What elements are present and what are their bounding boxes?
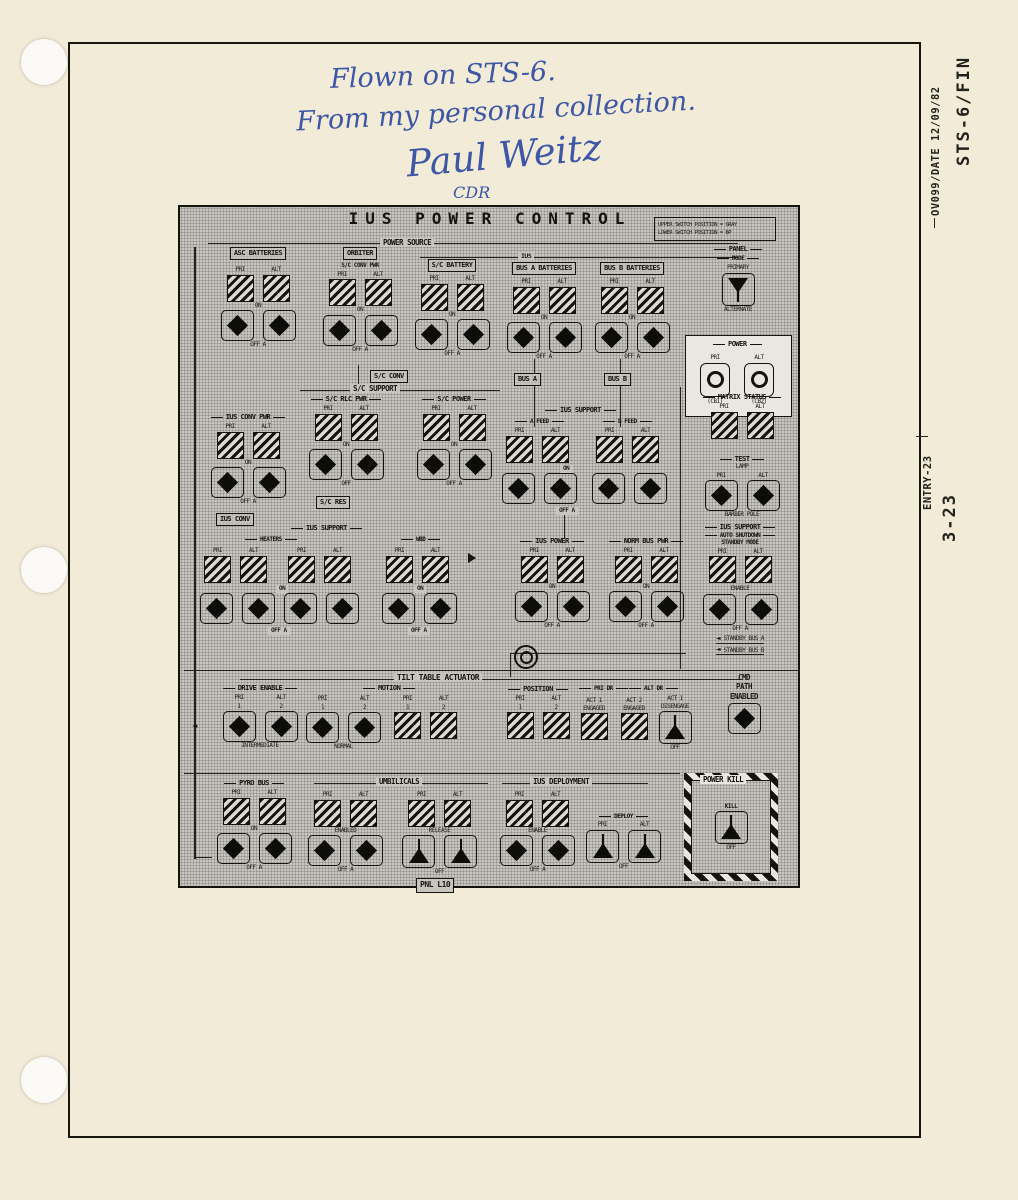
off-a-label: OFF A xyxy=(250,341,266,349)
toggle-switch xyxy=(557,591,590,622)
toggle-switch xyxy=(634,473,667,504)
num-1-label: 1 xyxy=(518,704,521,712)
auto-shutdown-label: AUTO SHUTDOWN xyxy=(702,532,778,539)
pri-label: PRI xyxy=(234,694,243,702)
ius-power-cluster: IUS POWER PRI ALT ON OFF A xyxy=(504,537,600,630)
alt-label: ALT xyxy=(467,405,476,413)
toggle-switch xyxy=(595,322,628,353)
alt-label: ALT xyxy=(753,548,762,556)
toggle-knob-icon xyxy=(314,454,335,475)
toggle-knob-icon xyxy=(600,327,621,348)
alt-label: ALT xyxy=(754,354,763,362)
talkback-indicator xyxy=(506,436,533,463)
off-a-label: OFF A xyxy=(268,627,290,635)
toggle-knob-icon xyxy=(258,472,279,493)
talkback-indicator xyxy=(204,556,231,583)
off-label: OFF xyxy=(341,480,350,488)
margin-tick xyxy=(934,218,935,228)
path-label: PATH xyxy=(736,682,752,691)
b-feed-talkbacks: PRI ALT xyxy=(596,427,659,463)
toggle-switch xyxy=(306,712,339,743)
ius-conv-pwr-cluster: IUS CONV PWR PRI ALT ON OFF A xyxy=(200,413,296,506)
orbiter-label: ORBITER xyxy=(343,247,377,260)
talkback-indicator xyxy=(288,556,315,583)
lever-switch xyxy=(444,835,477,868)
talkback-indicator xyxy=(386,556,413,583)
position-cluster: POSITION PRI1 ALT2 xyxy=(496,685,580,739)
toggle-knob-icon xyxy=(512,327,533,348)
lever-switch xyxy=(722,273,755,306)
panel-mode-cluster: PANEL MODE PRIMARY ALTERNATE xyxy=(688,245,788,313)
alt-label: ALT xyxy=(267,789,276,797)
toggle-switch xyxy=(542,835,575,866)
pri-label: PRI xyxy=(403,695,412,703)
a-feed-label: A FEED xyxy=(512,418,567,425)
lever-switch xyxy=(628,830,661,863)
section-ius: IUS xyxy=(518,252,534,260)
left-arrow-icon: ◄ xyxy=(716,636,721,642)
on-label: ON xyxy=(276,585,288,593)
num-2-label: 2 xyxy=(363,704,366,712)
toggle-switch xyxy=(507,322,540,353)
power-kill-box: POWER KILL KILL OFF xyxy=(684,773,778,881)
toggle-switch xyxy=(651,591,684,622)
on-label: ON xyxy=(549,583,555,591)
wbd-talkbacks: PRI ALT xyxy=(386,547,449,583)
toggle-switch xyxy=(457,319,490,350)
talkback-indicator xyxy=(329,279,356,306)
enabled-label: ENABLED xyxy=(730,692,758,701)
toggle-switch xyxy=(549,322,582,353)
toggle-knob-icon xyxy=(640,478,661,499)
alt-label: ALT xyxy=(557,278,566,286)
toggle-switch xyxy=(350,835,383,866)
talkback-indicator xyxy=(314,800,341,827)
test-cluster: TEST LAMP PRI ALT BARBER POLE xyxy=(692,455,792,519)
talkback-indicator xyxy=(632,436,659,463)
act1-engaged-label: ACT 1 ENGAGED xyxy=(576,697,612,712)
mode-label: MODE xyxy=(714,255,762,262)
toggle-knob-icon xyxy=(314,840,335,861)
ius-support-standby-cluster: IUS SUPPORT AUTO SHUTDOWN STANDBY MODE P… xyxy=(684,523,796,655)
standby-bus-b-line: ◄ STANDBY BUS B xyxy=(716,647,764,656)
off-label: OFF xyxy=(670,744,679,752)
off-label: OFF xyxy=(435,868,444,876)
talkback-indicator xyxy=(223,798,250,825)
row-divider-line xyxy=(184,773,680,774)
talkback-indicator xyxy=(351,414,378,441)
pri-label: PRI xyxy=(710,354,719,362)
alt-label: ALT xyxy=(249,547,258,555)
b-feed-label: B FEED xyxy=(600,418,655,425)
barber-pole-label: BARBER POLE xyxy=(725,511,759,519)
toggle-knob-icon xyxy=(550,478,571,499)
toggle-switch xyxy=(459,449,492,480)
talkback-indicator xyxy=(747,412,774,439)
enable-label: ENABLE xyxy=(528,827,547,835)
bus-line xyxy=(534,359,535,373)
toggle-knob-icon xyxy=(462,324,483,345)
section-ius-deployment: IUS DEPLOYMENT xyxy=(530,777,592,786)
pri-label: PRI xyxy=(623,547,632,555)
on-label: ON xyxy=(414,585,426,593)
bus-b-batteries-cluster: BUS B BATTERIES PRI ALT ON OFF A xyxy=(584,262,680,361)
toggle-knob-icon xyxy=(216,472,237,493)
pri-label: PRI xyxy=(515,791,524,799)
panel-label: PANEL xyxy=(711,245,766,253)
pri-label: PRI xyxy=(395,547,404,555)
pri-label: PRI xyxy=(323,405,332,413)
off-a-label: OFF A xyxy=(444,350,460,358)
asc-batteries-label: ASC BATTERIES xyxy=(230,247,286,260)
toggle-switch xyxy=(703,594,736,625)
toggle-switch xyxy=(415,319,448,350)
bus-line xyxy=(620,359,621,373)
num-2-label: 2 xyxy=(442,704,445,712)
talkback-indicator xyxy=(459,414,486,441)
schematic-title: IUS POWER CONTROL xyxy=(300,209,680,228)
talkback-indicator xyxy=(621,713,648,740)
right-arrow-icon xyxy=(468,553,476,563)
toggle-switch xyxy=(200,593,233,624)
toggle-switch xyxy=(424,593,457,624)
scanned-document-page: { "margin": { "doc_ref": "OV099/DATE 12/… xyxy=(0,0,1018,1200)
entry-label: ENTRY-23 xyxy=(922,440,934,510)
toggle-knob-icon xyxy=(370,320,391,341)
on-label: ON xyxy=(541,314,547,322)
heaters-switches-2 xyxy=(284,593,359,624)
panel-ref-label: PNL L10 xyxy=(416,878,454,893)
toggle-knob-icon xyxy=(356,840,377,861)
lever-switch xyxy=(659,711,692,744)
toggle-knob-icon xyxy=(548,840,569,861)
alt-label: ALT xyxy=(551,427,560,435)
pri-label: PRI xyxy=(213,547,222,555)
toggle-knob-icon xyxy=(508,478,529,499)
ius-power-control-schematic: IUS POWER CONTROL UPPER SWITCH POSITION … xyxy=(178,205,800,888)
left-arrow-icon: ◄ xyxy=(716,647,721,653)
toggle-knob-icon xyxy=(598,478,619,499)
bus-a-batteries-cluster: BUS A BATTERIES PRI ALT ON OFF A xyxy=(496,262,592,361)
toggle-switch xyxy=(728,703,761,734)
talkback-indicator xyxy=(444,800,471,827)
punch-hole xyxy=(21,39,67,85)
talkback-indicator xyxy=(227,275,254,302)
power-kill-label: POWER KILL xyxy=(700,775,746,784)
a-feed-talkbacks: PRI ALT xyxy=(506,427,569,463)
motion-talkbacks: PRI1 ALT2 xyxy=(394,695,457,739)
toggle-switch xyxy=(211,467,244,498)
on-label: ON xyxy=(451,441,457,449)
alt-label: ALT xyxy=(360,695,369,703)
toggle-knob-icon xyxy=(356,454,377,475)
toggle-switch xyxy=(745,594,778,625)
talkback-indicator xyxy=(601,287,628,314)
toggle-knob-icon xyxy=(270,716,291,737)
power-source-bracket-line xyxy=(208,243,738,244)
talkback-indicator xyxy=(615,556,642,583)
section-power-source: POWER SOURCE xyxy=(380,238,434,247)
act1-disengage-lever: ACT 1 DISENGAGE OFF xyxy=(654,695,696,752)
alt-label: ALT xyxy=(758,472,767,480)
toggle-knob-icon xyxy=(388,598,409,619)
pri-label: PRI xyxy=(521,278,530,286)
doc-ref-label: OV099/DATE 12/09/82 xyxy=(930,46,942,216)
off-label: OFF xyxy=(619,863,628,871)
margin-tick xyxy=(916,436,928,437)
talkback-indicator xyxy=(421,284,448,311)
talkback-indicator xyxy=(521,556,548,583)
off-a-label: OFF A xyxy=(556,507,578,515)
breaker-knob-icon xyxy=(751,371,768,388)
lever-stem-icon xyxy=(730,815,732,827)
section-umbilicals: UMBILICALS xyxy=(376,777,422,786)
pri-label: PRI xyxy=(605,427,614,435)
bus-b-batteries-label: BUS B BATTERIES xyxy=(600,262,664,275)
pyro-bus-label: PYRO BUS xyxy=(221,779,287,787)
alt-label: ALT xyxy=(333,547,342,555)
pri-label: PRI xyxy=(515,427,524,435)
toggle-switch xyxy=(515,591,548,622)
toggle-switch xyxy=(609,591,642,622)
primary-label: PRIMARY xyxy=(727,264,749,272)
bus-a-batteries-label: BUS A BATTERIES xyxy=(512,262,576,275)
toggle-switch xyxy=(284,593,317,624)
toggle-switch xyxy=(223,711,256,742)
power-kill-inner: POWER KILL KILL OFF xyxy=(691,780,771,874)
toggle-switch xyxy=(253,467,286,498)
toggle-knob-icon xyxy=(710,485,731,506)
off-a-label: OFF A xyxy=(408,627,430,635)
toggle-knob-icon xyxy=(733,708,754,729)
pri-label: PRI xyxy=(598,821,607,829)
off-a-label: OFF A xyxy=(240,498,256,506)
normal-label: NORMAL xyxy=(334,743,353,751)
mission-label: STS-6/FIN xyxy=(954,46,974,166)
toggle-switch xyxy=(309,449,342,480)
kill-label: KILL xyxy=(725,803,737,811)
talkback-indicator xyxy=(581,713,608,740)
lamp-label: LAMP xyxy=(736,463,748,471)
talkback-indicator xyxy=(637,287,664,314)
toggle-knob-icon xyxy=(562,596,583,617)
pyro-bus-cluster: PYRO BUS PRI ALT ON OFF A xyxy=(206,779,302,872)
talkback-indicator xyxy=(549,287,576,314)
toggle-switch xyxy=(417,449,450,480)
alt-label: ALT xyxy=(465,275,474,283)
act2-engaged-label: ACT 2 ENGAGED xyxy=(616,697,652,712)
off-a-label: OFF A xyxy=(544,622,560,630)
alt-label: ALT xyxy=(453,791,462,799)
pri-label: PRI xyxy=(225,423,234,431)
on-label: ON xyxy=(245,459,251,467)
pri-label: PRI xyxy=(431,405,440,413)
toggle-switch xyxy=(265,711,298,742)
toggle-switch xyxy=(365,315,398,346)
pri-label: PRI xyxy=(716,472,725,480)
toggle-knob-icon xyxy=(750,598,771,619)
alt-label: ALT xyxy=(431,547,440,555)
row-divider-line xyxy=(184,670,798,671)
toggle-knob-icon xyxy=(642,327,663,348)
toggle-knob-icon xyxy=(328,320,349,341)
toggle-knob-icon xyxy=(520,596,541,617)
left-bus-line xyxy=(194,247,196,859)
pri-label: PRI xyxy=(235,266,244,274)
deployment-enable-cluster: PRI ALT ENABLE OFF A xyxy=(500,791,575,874)
on-label: ON xyxy=(643,583,649,591)
alt-label: ALT xyxy=(261,423,270,431)
lever-stem-icon xyxy=(644,834,646,846)
alt-label: ALT xyxy=(659,547,668,555)
on-label: ON xyxy=(629,314,635,322)
alt-label: ALT xyxy=(641,427,650,435)
ius-conv-label: IUS CONV xyxy=(216,513,254,526)
act1-engaged-talkback: ACT 1 ENGAGED xyxy=(576,697,612,740)
sc-power-label: S/C POWER xyxy=(419,395,488,403)
num-1-label: 1 xyxy=(237,703,240,711)
page-number-label: 3-23 xyxy=(940,452,960,542)
off-label: OFF xyxy=(726,844,735,852)
talkback-indicator xyxy=(263,275,290,302)
punch-hole xyxy=(21,547,67,593)
toggle-knob-icon xyxy=(228,716,249,737)
talkback-indicator xyxy=(507,712,534,739)
toggle-knob-icon xyxy=(268,315,289,336)
toggle-switch xyxy=(382,593,415,624)
sc-battery-cluster: S/C BATTERY PRI ALT ON OFF A xyxy=(404,259,500,358)
alt-dr-label: ALT DR xyxy=(626,685,681,692)
talkback-indicator xyxy=(240,556,267,583)
talkback-indicator xyxy=(709,556,736,583)
ius-support-label: IUS SUPPORT xyxy=(702,523,779,531)
alt-label: ALT xyxy=(271,266,280,274)
umbilicals-release-cluster: PRI ALT RELEASE OFF xyxy=(402,791,477,876)
sc-rlc-pwr-label: S/C RLC PWR xyxy=(308,395,385,403)
standby-bus-a-line: ◄ STANDBY BUS A xyxy=(716,635,764,644)
toggle-knob-icon xyxy=(312,717,333,738)
bus-a-label: BUS A xyxy=(514,373,541,386)
position-label: POSITION xyxy=(505,685,571,693)
norm-bus-pwr-label: NORM BUS PWR xyxy=(606,537,687,545)
drive-enable-label: DRIVE ENABLE xyxy=(220,684,301,692)
on-label: ON xyxy=(449,311,455,319)
standby-bus-a-label: STANDBY BUS A xyxy=(724,635,764,643)
a-feed-switches xyxy=(502,473,577,504)
talkback-indicator xyxy=(543,712,570,739)
alt-label: ALT xyxy=(551,695,560,703)
enable-label: ENABLE xyxy=(731,585,750,593)
talkback-indicator xyxy=(315,414,342,441)
toggle-knob-icon xyxy=(554,327,575,348)
num-2-label: 2 xyxy=(554,704,557,712)
standby-bus-b-label: STANDBY BUS B xyxy=(724,647,764,655)
alt-label: ALT xyxy=(640,821,649,829)
talkback-indicator xyxy=(408,800,435,827)
ius-power-label: IUS POWER xyxy=(517,537,586,545)
talkback-indicator xyxy=(253,432,280,459)
pri-label: PRI xyxy=(719,403,728,411)
lever-switch xyxy=(402,835,435,868)
alt-label: ALT xyxy=(359,791,368,799)
toggle-switch xyxy=(308,835,341,866)
note-line1: UPPER SWITCH POSITION = GRAY xyxy=(658,222,737,229)
toggle-switch xyxy=(259,833,292,864)
off-a-label: OFF A xyxy=(624,353,640,361)
motion-label: MOTION xyxy=(360,684,418,692)
toggle-knob-icon xyxy=(506,840,527,861)
toggle-knob-icon xyxy=(430,598,451,619)
off-a-label: OFF A xyxy=(446,480,462,488)
alternate-label: ALTERNATE xyxy=(724,306,752,314)
toggle-knob-icon xyxy=(422,454,443,475)
toggle-switch xyxy=(500,835,533,866)
on-label: ON xyxy=(343,441,349,449)
sc-power-cluster: S/C POWER PRI ALT ON OFF A xyxy=(406,395,502,488)
alt-label: ALT xyxy=(565,547,574,555)
asc-batteries-cluster: ASC BATTERIES PRI ALT ON OFF A xyxy=(210,247,306,349)
toggle-knob-icon xyxy=(354,717,375,738)
toggle-switch xyxy=(637,322,670,353)
toggle-switch xyxy=(351,449,384,480)
sc-conv-label: S/C CONV xyxy=(370,370,408,383)
off-a-label: OFF A xyxy=(246,864,262,872)
tilt-table-bracket-line xyxy=(240,679,740,680)
enabled-label: ENABLED xyxy=(335,827,357,835)
pri-label: PRI xyxy=(429,275,438,283)
left-arrow-icon: ◄ xyxy=(192,723,197,730)
pri-label: PRI xyxy=(231,789,240,797)
alt-label: ALT xyxy=(373,271,382,279)
deployment-deploy-cluster: DEPLOY PRI ALT OFF xyxy=(586,813,661,870)
num-1-label: 1 xyxy=(321,704,324,712)
toggle-knob-icon xyxy=(222,838,243,859)
talkback-indicator xyxy=(506,800,533,827)
sc-res-label: S/C RES xyxy=(316,496,350,509)
sc-conv-pwr-label: S/C CONV PWR xyxy=(341,262,378,270)
pri-label: PRI xyxy=(297,547,306,555)
ius-conv-pwr-label: IUS CONV PWR xyxy=(208,413,289,421)
talkback-indicator xyxy=(711,412,738,439)
toggle-knob-icon xyxy=(332,598,353,619)
off-a-label: OFF A xyxy=(536,353,552,361)
pri-label: PRI xyxy=(717,548,726,556)
toggle-switch xyxy=(221,310,254,341)
heaters-talkbacks-2: PRI ALT xyxy=(288,547,351,583)
deploy-label: DEPLOY xyxy=(596,813,651,820)
ius-support-left-label: IUS SUPPORT xyxy=(288,524,365,532)
pri-label: PRI xyxy=(323,791,332,799)
drive-enable-cluster: DRIVE ENABLE PRI1 ALT2 INTERMEDIATE xyxy=(210,684,310,750)
act2-engaged-talkback: ACT 2 ENGAGED xyxy=(616,697,652,740)
talkback-indicator xyxy=(542,800,569,827)
lever-stem-icon xyxy=(460,839,462,851)
alt-label: ALT xyxy=(551,791,560,799)
off-a-label: OFF A xyxy=(352,346,368,354)
talkback-indicator xyxy=(423,414,450,441)
bus-b-label: BUS B xyxy=(604,373,631,386)
toggle-knob-icon xyxy=(420,324,441,345)
talkback-indicator xyxy=(394,712,421,739)
off-a-label: OFF A xyxy=(732,625,748,633)
cmd-label: CMD xyxy=(738,673,750,682)
toggle-switch xyxy=(747,480,780,511)
off-a-label: OFF A xyxy=(338,866,354,874)
alt-label: ALT xyxy=(276,694,285,702)
toggle-switch xyxy=(217,833,250,864)
lever-stem-icon xyxy=(737,290,739,302)
act1-disengage-label: ACT 1 DISENGAGE xyxy=(654,695,696,710)
